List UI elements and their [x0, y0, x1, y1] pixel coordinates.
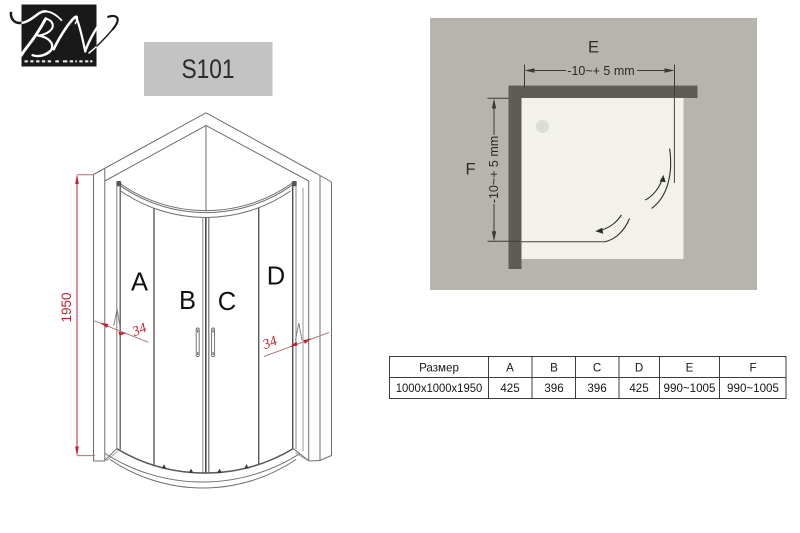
svg-text:1950: 1950	[59, 292, 74, 322]
svg-text:B: B	[550, 362, 558, 375]
svg-text:E: E	[686, 362, 694, 375]
svg-text:1000x1000x1950: 1000x1000x1950	[396, 382, 483, 395]
svg-text:C: C	[218, 288, 236, 316]
svg-text:990~1005: 990~1005	[727, 382, 779, 395]
svg-text:A: A	[131, 269, 148, 297]
svg-text:A: A	[506, 362, 514, 375]
svg-text:425: 425	[500, 382, 519, 395]
svg-text:396: 396	[587, 382, 606, 395]
svg-text:-10~+ 5 mm: -10~+ 5 mm	[567, 64, 634, 78]
svg-text:C: C	[593, 362, 601, 375]
svg-text:F: F	[465, 161, 475, 179]
svg-text:E: E	[588, 39, 599, 57]
svg-text:Размер: Размер	[419, 361, 459, 374]
svg-text:425: 425	[629, 382, 648, 395]
svg-text:396: 396	[544, 382, 563, 395]
svg-text:D: D	[635, 362, 643, 375]
svg-text:B: B	[179, 287, 196, 315]
svg-text:F: F	[749, 362, 756, 375]
svg-text:D: D	[267, 263, 285, 291]
svg-text:-10~+ 5 mm: -10~+ 5 mm	[487, 136, 501, 203]
svg-text:S101: S101	[182, 54, 235, 84]
svg-text:990~1005: 990~1005	[664, 382, 716, 395]
